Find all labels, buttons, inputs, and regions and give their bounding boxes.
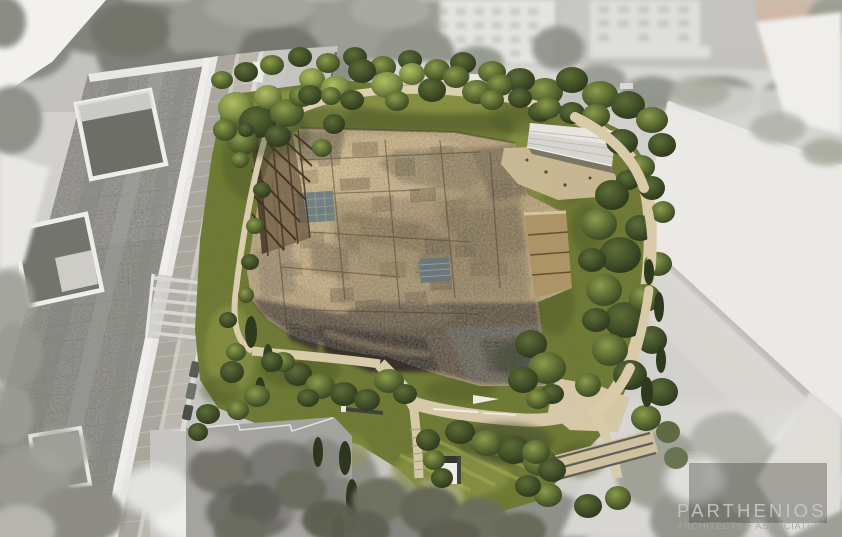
- svg-text:ARCHITECTS + ASSOCIATES: ARCHITECTS + ASSOCIATES: [677, 521, 821, 532]
- svg-text:PARTHENIOS: PARTHENIOS: [677, 500, 827, 521]
